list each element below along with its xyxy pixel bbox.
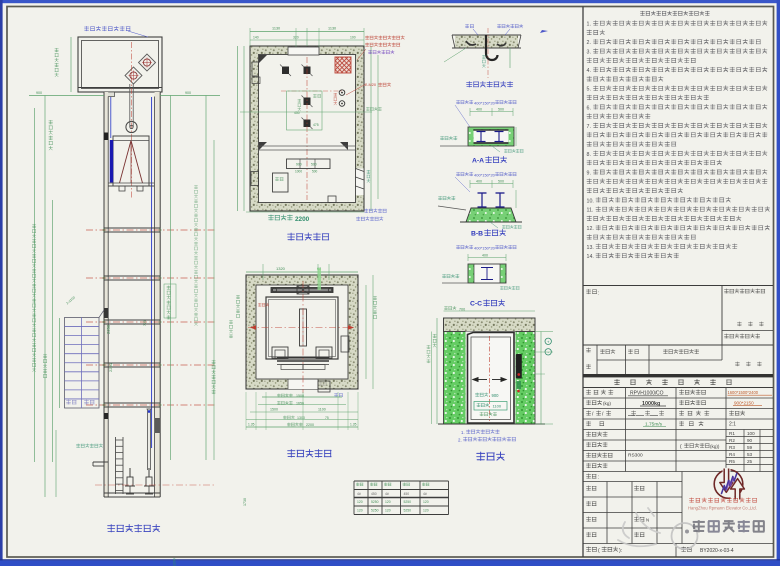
svg-text:1100*2200: 1100*2200 xyxy=(173,558,177,566)
